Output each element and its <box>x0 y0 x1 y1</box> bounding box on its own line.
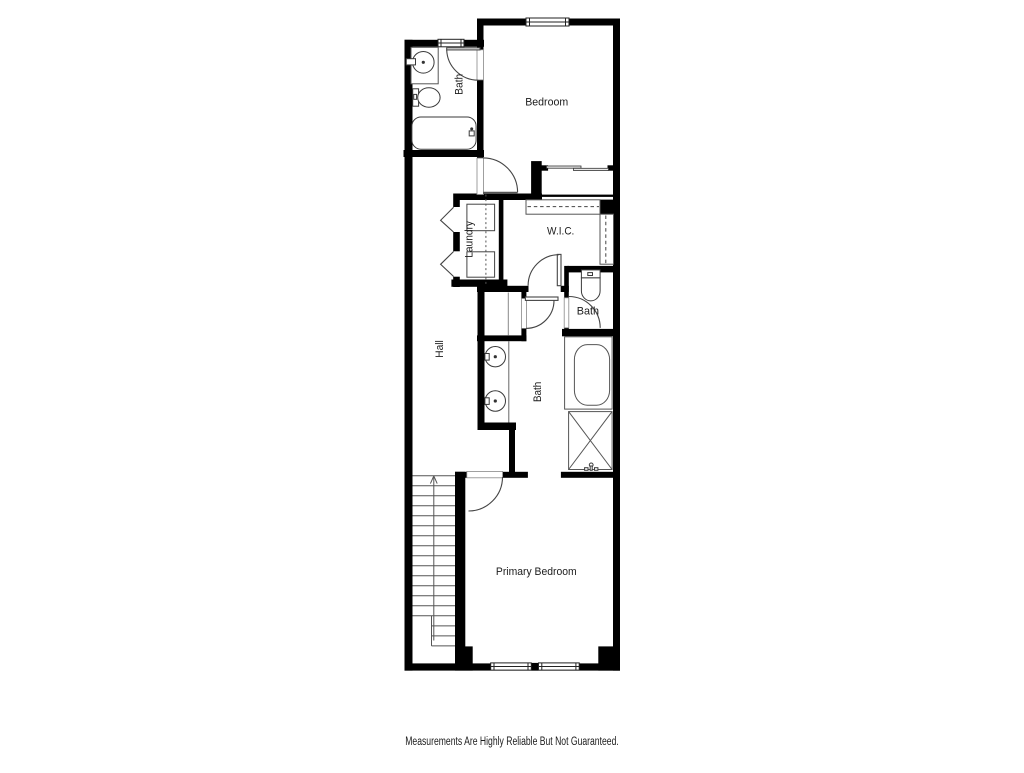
svg-text:Laundry: Laundry <box>463 221 475 258</box>
svg-text:W.I.C.: W.I.C. <box>547 226 574 238</box>
svg-text:Bath: Bath <box>532 382 544 402</box>
svg-text:Bedroom: Bedroom <box>525 97 568 109</box>
svg-text:Primary Bedroom: Primary Bedroom <box>496 566 577 578</box>
svg-text:Hall: Hall <box>434 340 446 358</box>
svg-text:Bath: Bath <box>454 74 466 95</box>
svg-text:Measurements Are Highly Reliab: Measurements Are Highly Reliable But Not… <box>405 736 619 748</box>
svg-text:Bath: Bath <box>577 305 599 317</box>
